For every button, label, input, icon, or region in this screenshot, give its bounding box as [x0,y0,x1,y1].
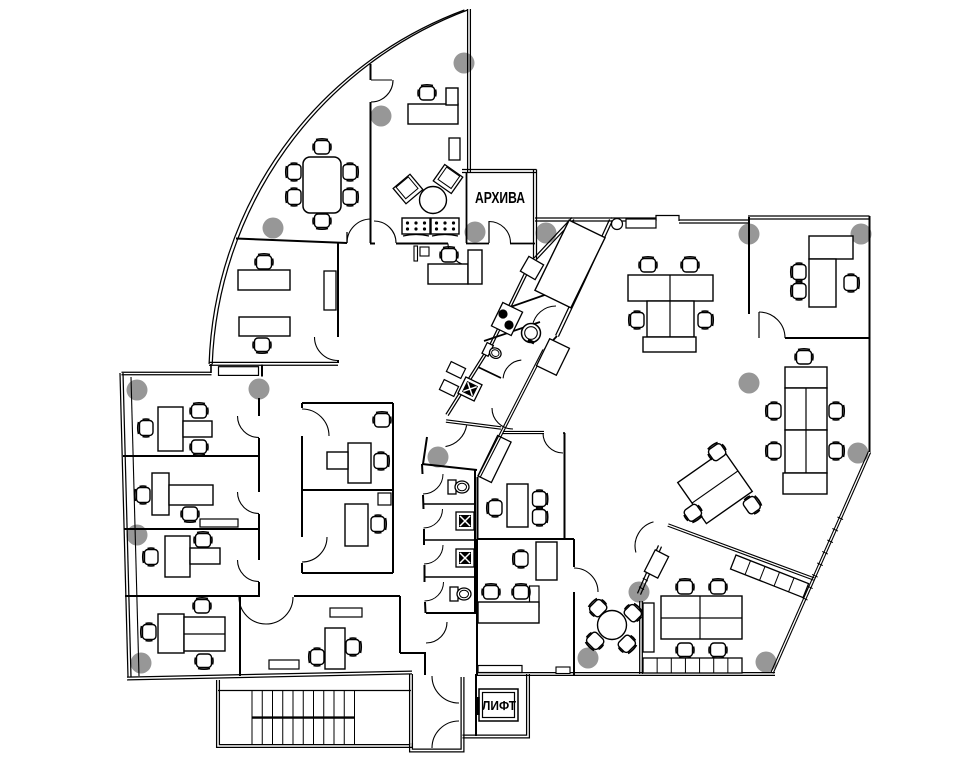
svg-text:АРХИВА: АРХИВА [475,190,525,207]
svg-text:ЛИФТ: ЛИФТ [482,698,516,713]
